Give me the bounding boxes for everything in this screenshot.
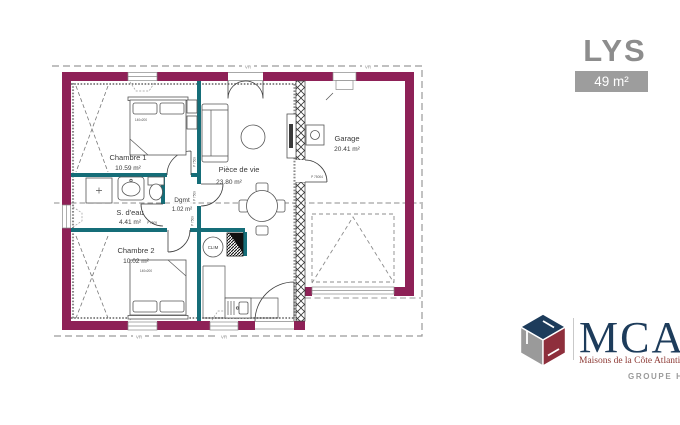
door-ref-dgmt: P 7509 bbox=[193, 191, 197, 201]
door-ref-ch1: P 7509 bbox=[193, 157, 197, 167]
sdeau-area-label: 4.41 m² bbox=[119, 219, 142, 226]
chambre1-name-label: Chambre 1 bbox=[109, 153, 146, 162]
chambre2-name-label: Chambre 2 bbox=[117, 246, 154, 255]
sink bbox=[118, 177, 144, 200]
nightstand bbox=[187, 116, 197, 129]
chambre2-area-label: 10.02 m² bbox=[123, 258, 149, 265]
page-title: LYS bbox=[583, 33, 646, 68]
floor-plan-canvas: P 7509 P 7509 P 7509 P 7509 P 75004 bbox=[0, 0, 680, 425]
sofa bbox=[202, 104, 228, 162]
laundry-space bbox=[86, 178, 112, 203]
garage-name-label: Garage bbox=[334, 134, 359, 143]
tv-unit bbox=[287, 114, 296, 158]
technical-box bbox=[306, 125, 324, 145]
area-badge-label: 49 m² bbox=[594, 74, 629, 89]
vr-label: VR bbox=[245, 65, 252, 70]
toilet bbox=[148, 177, 164, 200]
page-background bbox=[0, 0, 680, 425]
garage-area-label: 20.41 m² bbox=[334, 146, 360, 153]
door-ref-bath: P 7509 bbox=[147, 221, 157, 225]
door-ref-ch2: P 7509 bbox=[191, 216, 195, 226]
nightstand bbox=[187, 100, 197, 113]
bed2-size-label: 140x200 bbox=[140, 269, 152, 273]
bed-chambre1: 140x200 bbox=[128, 97, 188, 155]
brand-group: GROUPE HEXAÔM bbox=[628, 372, 680, 381]
sdeau-name-label: S. d'eau bbox=[116, 208, 143, 217]
dgmt-name-label: Dgmt bbox=[174, 197, 190, 204]
piece-de-vie-name-label: Pièce de vie bbox=[219, 165, 260, 174]
plan-header: LYS 49 m² bbox=[575, 33, 648, 92]
dgmt-area-label: 1.02 m² bbox=[172, 207, 192, 213]
vr-label: VR bbox=[136, 335, 143, 340]
piece-de-vie-area-label: 23.80 m² bbox=[216, 179, 242, 186]
garage-separation-wall bbox=[296, 81, 305, 321]
clim-label: CLIM bbox=[208, 245, 219, 250]
vr-label: VR bbox=[365, 65, 372, 70]
brand-tagline: Maisons de la Côte Atlantique bbox=[579, 356, 680, 366]
bed-chambre2: 140x200 bbox=[128, 260, 188, 319]
chambre1-area-label: 10.59 m² bbox=[115, 165, 141, 172]
bed1-size-label: 140x200 bbox=[135, 118, 147, 122]
brand-name: MCA bbox=[579, 313, 680, 362]
coffee-table bbox=[241, 125, 265, 149]
vr-label: VR bbox=[221, 335, 228, 340]
clim-unit: CLIM bbox=[203, 237, 223, 257]
door-ref-garage: P 75004 bbox=[311, 175, 323, 179]
water-heater bbox=[227, 233, 243, 256]
